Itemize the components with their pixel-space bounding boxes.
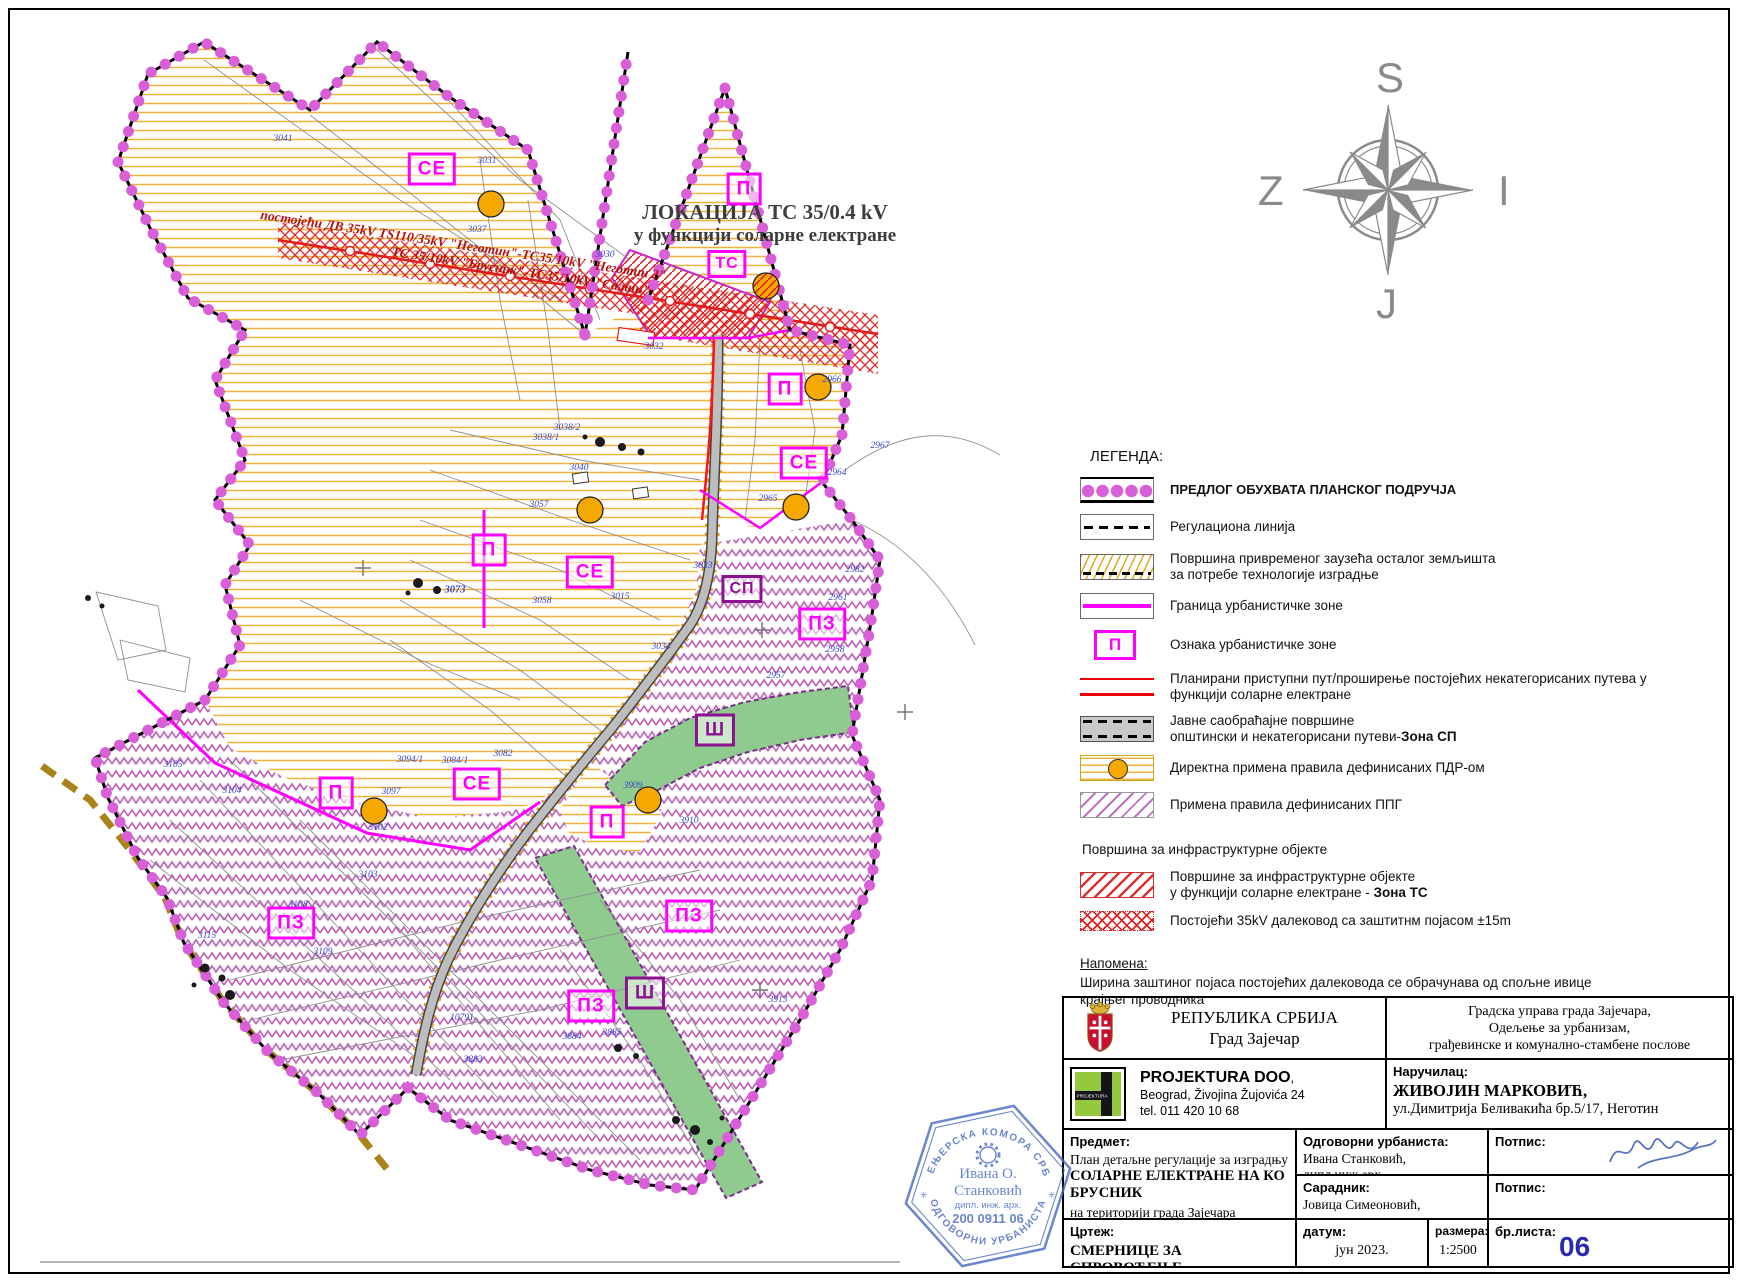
drawing-cell: Цртеж: СМЕРНИЦЕ ЗА СПРОВОЂЕЊЕ: [1063, 1219, 1296, 1267]
svg-text:✳: ✳: [1048, 1190, 1056, 1200]
signature2-label: Потпис:: [1495, 1180, 1726, 1195]
legend-item-label: Директна примена правила дефинисаних ПДР…: [1170, 760, 1485, 776]
subject-line1: План детаљне регулације за изградњу: [1070, 1152, 1289, 1168]
parcel-number: 3041: [274, 134, 293, 144]
zone-label-ТС: ТС: [707, 250, 746, 278]
legend-item: ПОзнака урбанистичке зоне: [1080, 630, 1728, 660]
associate-label: Сарадник:: [1303, 1180, 1481, 1195]
parcel-number: 3031: [478, 156, 497, 166]
legend-swatch-temp: [1080, 554, 1154, 580]
subject-line2: СОЛАРНЕ ЕЛЕКТРАНЕ НА КО БРУСНИК: [1070, 1168, 1289, 1202]
date-label: датум:: [1303, 1224, 1421, 1239]
legend-item: Примена правила дефинисаних ППГ: [1080, 792, 1728, 818]
zone-label-П: П: [590, 806, 625, 839]
legend-item: Површине за инфраструктурне објектеу фун…: [1080, 869, 1728, 900]
legend-swatch-ppg: [1080, 792, 1154, 818]
parcel-number: 2957: [767, 671, 786, 681]
republic-cell: РЕПУБЛИКА СРБИЈА Град Зајечар: [1063, 997, 1386, 1059]
parcel-number: 10791: [450, 1013, 474, 1023]
drawing-label: Цртеж:: [1070, 1224, 1289, 1239]
legend-swatch-dots: [1080, 477, 1154, 503]
pdr-circle-symbol: [361, 798, 387, 824]
parcel-number: 3097: [382, 787, 401, 797]
compass-rose: S Z I J: [1240, 40, 1530, 330]
scale-label: размера:: [1435, 1224, 1481, 1238]
parcel-number: 3038/2: [554, 423, 580, 433]
legend-item: ПРЕДЛОГ ОБУХВАТА ПЛАНСКОГ ПОДРУЧЈА: [1080, 477, 1728, 503]
stamp-name1: Ивана О.: [959, 1166, 1016, 1182]
pdr-circle-symbol: [783, 494, 809, 520]
zone-label-СЕ: СЕ: [453, 768, 501, 801]
note-title: Напомена:: [1080, 955, 1728, 972]
map-title-line1: ЛОКАЦИЈА ТС 35/0.4 kV: [545, 200, 985, 224]
parcel-number: 3913: [769, 995, 788, 1005]
stamp-name2: Станковић: [954, 1183, 1022, 1199]
map-title-line2: у функцији соларне електране: [545, 224, 985, 248]
parcel-number: 3115: [198, 931, 216, 941]
scale-cell: размера: 1:2500: [1428, 1219, 1488, 1267]
zone-label-СЕ: СЕ: [780, 447, 828, 480]
stamp-profession: дипл. инж. арх.: [955, 1200, 1022, 1211]
stamp-number: 200 0911 06: [952, 1211, 1024, 1226]
parcel-number: 2961: [829, 593, 848, 603]
zone-label-П: П: [472, 534, 507, 567]
signature-scribble: [1604, 1130, 1724, 1174]
client-label: Наручилац:: [1393, 1064, 1726, 1079]
parcel-number: 3073: [445, 585, 466, 596]
zone-label-Ш: Ш: [695, 714, 735, 747]
parcel-number: 3883: [464, 1055, 483, 1065]
republic-line1: РЕПУБЛИКА СРБИЈА: [1130, 1007, 1379, 1028]
authority-cell: Градска управа града Зајечара, Одељење з…: [1386, 997, 1733, 1059]
urbanist-stamp: ИНЖЕЊЕРСКА КОМОРА СРБИЈЕ ОДГОВОРНИ УРБАН…: [893, 1096, 1083, 1276]
client-name: ЖИВОЈИН МАРКОВИЋ,: [1393, 1081, 1726, 1101]
subject-cell: Предмет: План детаљне регулације за изгр…: [1063, 1129, 1296, 1219]
legend-swatch-pbox: П: [1094, 630, 1136, 660]
legend-item-label: Планирани приступни пут/проширење постој…: [1170, 671, 1647, 702]
legend-item-label: ПРЕДЛОГ ОБУХВАТА ПЛАНСКОГ ПОДРУЧЈА: [1170, 482, 1456, 498]
legend-swatch-magline: [1080, 593, 1154, 619]
legend-item-label: Постојећи 35kV далековод са заштитнм пој…: [1170, 913, 1511, 929]
authority-line3: грађевинске и комунално-стамбене послове: [1393, 1037, 1726, 1054]
zone-label-ПЗ: ПЗ: [567, 990, 615, 1023]
compass-west-label: Z: [1258, 167, 1284, 214]
sheet-number-label: бр.листа:: [1495, 1224, 1726, 1239]
parcel-number: 3040: [570, 463, 589, 473]
zone-label-П: П: [319, 777, 354, 810]
subject-line3: на територији града Зајечара: [1070, 1205, 1289, 1219]
serbia-coat-of-arms: [1084, 1001, 1116, 1055]
zone-label-ПЗ: ПЗ: [798, 608, 846, 641]
parcel-number: 3057: [530, 500, 549, 510]
scale-value: 1:2500: [1435, 1242, 1481, 1258]
legend-item: Граница урбанистичке зоне: [1080, 593, 1728, 619]
parcel-number: 3038/1: [533, 433, 559, 443]
pdr-circle-symbol: [478, 191, 504, 217]
parcel-number: 3884: [563, 1032, 582, 1042]
legend-subitems: Површине за инфраструктурне објектеу фун…: [1080, 869, 1728, 931]
client-cell: Наручилац: ЖИВОЈИН МАРКОВИЋ, ул.Димитриј…: [1386, 1059, 1733, 1129]
date-cell: датум: јун 2023.: [1296, 1219, 1428, 1267]
zone-label-СЕ: СЕ: [566, 556, 614, 589]
sheet-number-value: 06: [1559, 1231, 1590, 1263]
urbanist-name: Ивана Станковић, дипл.инж.арх.: [1303, 1151, 1481, 1175]
legend-swatch-infra: [1080, 872, 1154, 898]
parcel-number: 2958: [826, 645, 845, 655]
legend-item-label: Јавне саобраћајне површинеопштински и не…: [1170, 713, 1457, 744]
compass-south-label: J: [1376, 280, 1397, 327]
zone-label-ПЗ: ПЗ: [665, 900, 713, 933]
legend: ЛЕГЕНДА: ПРЕДЛОГ ОБУХВАТА ПЛАНСКОГ ПОДРУ…: [1080, 448, 1728, 1008]
parcel-number: 3109: [314, 947, 333, 957]
drawing-name: СМЕРНИЦЕ ЗА СПРОВОЂЕЊЕ: [1070, 1243, 1289, 1267]
svg-text:✳: ✳: [920, 1190, 928, 1200]
legend-swatch-road: [1080, 716, 1154, 742]
parcel-number: 3032: [645, 342, 664, 352]
compass-star: [1303, 105, 1473, 275]
parcel-number: 3103: [359, 870, 378, 880]
signature2-cell: Потпис:: [1488, 1175, 1733, 1219]
zone-label-П: П: [768, 373, 803, 406]
legend-item: Јавне саобраћајне површинеопштински и не…: [1080, 713, 1728, 744]
plan-sheet: ЛОКАЦИЈА ТС 35/0.4 kV у функцији соларне…: [0, 0, 1738, 1282]
title-block: РЕПУБЛИКА СРБИЈА Град Зајечар Градска уп…: [1063, 997, 1733, 1267]
legend-swatch-pdr: [1080, 755, 1154, 781]
zone-label-П: П: [727, 173, 762, 206]
urbanist-label: Одговорни урбаниста:: [1303, 1134, 1481, 1149]
authority-line1: Градска управа града Зајечара,: [1393, 1003, 1726, 1020]
parcel-number: 3108: [289, 900, 308, 910]
legend-item-label: Регулациона линија: [1170, 519, 1295, 535]
parcel-number: 3909: [624, 781, 643, 791]
compass-north-label: S: [1376, 54, 1404, 101]
parcel-number: 3034: [652, 642, 671, 652]
parcel-number: 3105: [164, 760, 183, 770]
legend-item-label: Површине за инфраструктурне објектеу фун…: [1170, 869, 1428, 900]
legend-item: Регулациона линија: [1080, 514, 1728, 540]
legend-item: Постојећи 35kV далековод са заштитнм пој…: [1080, 911, 1728, 931]
zone-label-СП: СП: [721, 575, 762, 603]
map-drawing: [0, 0, 1060, 1282]
legend-item-label: Примена правила дефинисаних ППГ: [1170, 797, 1402, 813]
legend-item-label: Површина привременог заузећа осталог зем…: [1170, 551, 1496, 582]
legend-item: Површина привременог заузећа осталог зем…: [1080, 551, 1728, 582]
parcel-number: 3104: [223, 786, 242, 796]
urbanist-cell: Одговорни урбаниста: Ивана Станковић, ди…: [1296, 1129, 1488, 1175]
company-name: PROJEKTURA DOO: [1140, 1069, 1291, 1086]
parcel-number: 2967: [871, 441, 890, 451]
date-value: јун 2023.: [1303, 1243, 1421, 1259]
legend-item: Директна примена правила дефинисаних ПДР…: [1080, 755, 1728, 781]
parcel-number: 3030: [596, 250, 615, 260]
compass-east-label: I: [1498, 167, 1510, 214]
zone-label-ПЗ: ПЗ: [267, 907, 315, 940]
parcel-number: 3102: [369, 823, 388, 833]
parcel-number: 2964: [828, 468, 847, 478]
note-line: Ширина заштиног појаса постојећих далеко…: [1080, 974, 1728, 991]
map-location-title: ЛОКАЦИЈА ТС 35/0.4 kV у функцији соларне…: [545, 200, 985, 248]
legend-item: Планирани приступни пут/проширење постој…: [1080, 671, 1728, 702]
legend-swatch-redlines: [1080, 678, 1154, 696]
parcel-number: 3033: [694, 561, 713, 571]
legend-swatch-dalekovod: [1080, 911, 1154, 931]
parcel-number: 3084/1: [442, 756, 468, 766]
parcel-number: 2966: [823, 375, 842, 385]
republic-line2: Град Зајечар: [1130, 1028, 1379, 1049]
parcel-number: 3910: [680, 816, 699, 826]
parcel-number: 2965: [759, 494, 778, 504]
parcel-number: 3885: [603, 1028, 622, 1038]
company-phone: tel. 011 420 10 68: [1140, 1103, 1305, 1119]
legend-swatch-dash: [1080, 514, 1154, 540]
parcel-number: 3058: [533, 596, 552, 606]
company-cell: PROJEKTURA PROJEKTURA DOO, Beograd, Živo…: [1063, 1059, 1386, 1129]
legend-subtitle: Површина за инфраструктурне објекте: [1082, 842, 1728, 857]
pdr-circle-symbol: [577, 497, 603, 523]
parcel-number: 3082: [494, 749, 513, 759]
signature1-cell: Потпис:: [1488, 1129, 1733, 1175]
parcel-number: 3015: [611, 592, 630, 602]
legend-item-label: Ознака урбанистичке зоне: [1170, 637, 1336, 653]
parcel-number: 2982: [846, 565, 865, 575]
authority-line2: Одељење за урбанизам,: [1393, 1020, 1726, 1037]
zone-label-СЕ: СЕ: [408, 153, 456, 186]
legend-item-label: Граница урбанистичке зоне: [1170, 598, 1343, 614]
parcel-number: 3094/1: [397, 755, 423, 765]
subject-label: Предмет:: [1070, 1134, 1289, 1149]
parcel-number: 3037: [468, 225, 487, 235]
company-address: Beograd, Živojina Žujovića 24: [1140, 1087, 1305, 1103]
legend-title: ЛЕГЕНДА:: [1090, 448, 1728, 465]
associate-name: Јовица Симеоновић, дипл.инж.арх.: [1303, 1197, 1481, 1219]
client-address: ул.Димитрија Беливакића бр.5/17, Неготин: [1393, 1101, 1726, 1118]
legend-items: ПРЕДЛОГ ОБУХВАТА ПЛАНСКОГ ПОДРУЧЈАРегула…: [1080, 477, 1728, 818]
sheet-number-cell: бр.листа: 06: [1488, 1219, 1733, 1267]
associate-cell: Сарадник: Јовица Симеоновић, дипл.инж.ар…: [1296, 1175, 1488, 1219]
zone-label-Ш: Ш: [625, 977, 665, 1010]
